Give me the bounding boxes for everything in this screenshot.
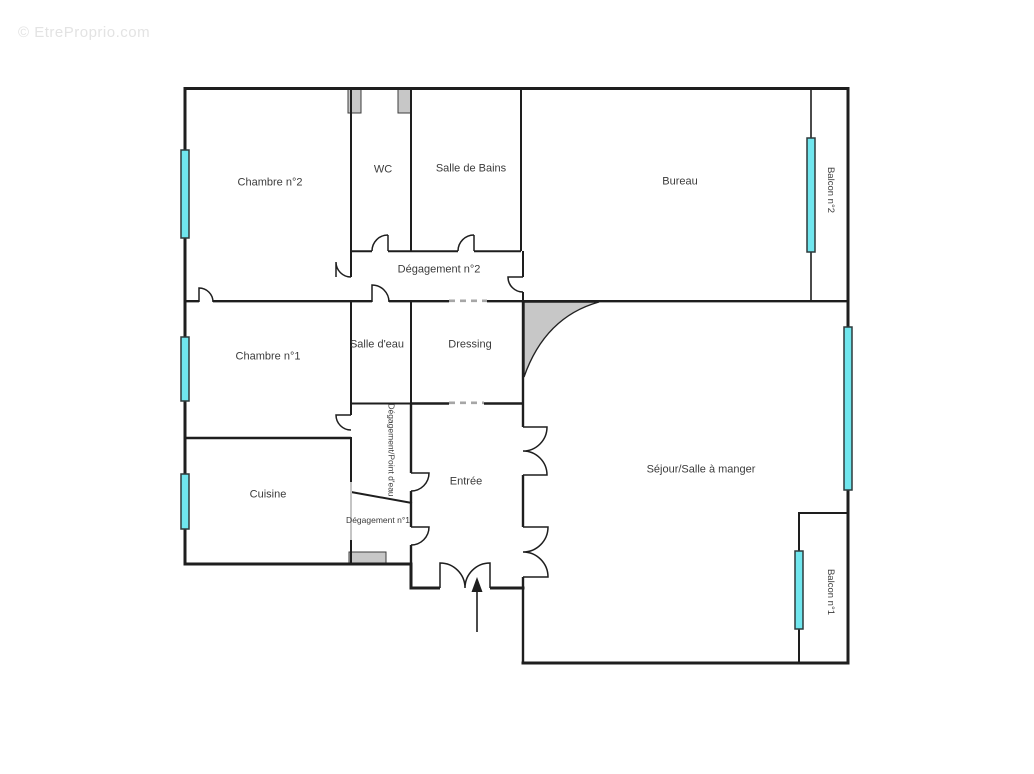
duct-degagement1 (349, 552, 386, 564)
dashed-openings (449, 301, 487, 403)
room-label-degagement-1: Dégagement n°1 (346, 516, 410, 525)
partition-walls (351, 87, 848, 663)
room-label-cuisine: Cuisine (250, 490, 287, 501)
watermark: © EtreProprio.com (18, 25, 150, 40)
window-balcon-2 (807, 138, 815, 252)
curved-wall-sejour-corner (524, 302, 599, 377)
entry-door (440, 563, 490, 588)
gray-ducts (348, 88, 599, 564)
room-label-degagement-2: Dégagement n°2 (398, 265, 481, 276)
window-balcon-1 (795, 551, 803, 629)
door-degagement1-entree (411, 527, 429, 545)
room-label-entree: Entrée (450, 477, 482, 488)
door-wc (372, 235, 388, 251)
diagonal-wall (351, 492, 412, 503)
double-door-entree-sejour-2 (523, 527, 548, 577)
floorplan-drawing (0, 0, 1034, 774)
door-chambre1-chambre2 (199, 288, 213, 302)
room-label-chambre-2: Chambre n°2 (238, 178, 303, 189)
windows (181, 138, 852, 629)
room-label-chambre-1: Chambre n°1 (236, 352, 301, 363)
window-cuisine (181, 474, 189, 529)
entry-arrow (472, 577, 483, 632)
window-sejour (844, 327, 852, 490)
duct-wc-right (398, 88, 411, 113)
room-label-sejour: Séjour/Salle à manger (647, 465, 756, 476)
room-label-degagement-point-deau: Dégagement/Point d'eau (387, 403, 396, 496)
door-salle-deau (372, 285, 389, 302)
room-label-salle-deau: Salle d'eau (350, 340, 404, 351)
floorplan-page: © EtreProprio.com Chambre n°2 WC Salle d… (0, 0, 1034, 774)
room-label-balcon-1: Balcon n°1 (825, 569, 835, 615)
room-label-wc: WC (374, 165, 392, 176)
door-degagement2-sejour (508, 277, 523, 292)
room-label-salle-de-bains: Salle de Bains (436, 164, 506, 175)
outer-walls (184, 87, 850, 665)
door-point-deau-entree (411, 473, 429, 491)
door-salle-de-bains (458, 235, 474, 251)
door-chambre-1 (336, 415, 351, 430)
room-label-dressing: Dressing (448, 340, 491, 351)
duct-wc-left (348, 88, 361, 113)
window-chambre-1 (181, 337, 189, 401)
door-chambre-2 (336, 262, 351, 277)
doors (199, 235, 548, 588)
room-label-balcon-2: Balcon n°2 (825, 167, 835, 213)
room-label-bureau: Bureau (662, 177, 697, 188)
window-chambre-2 (181, 150, 189, 238)
double-door-entree-sejour-1 (523, 427, 547, 475)
